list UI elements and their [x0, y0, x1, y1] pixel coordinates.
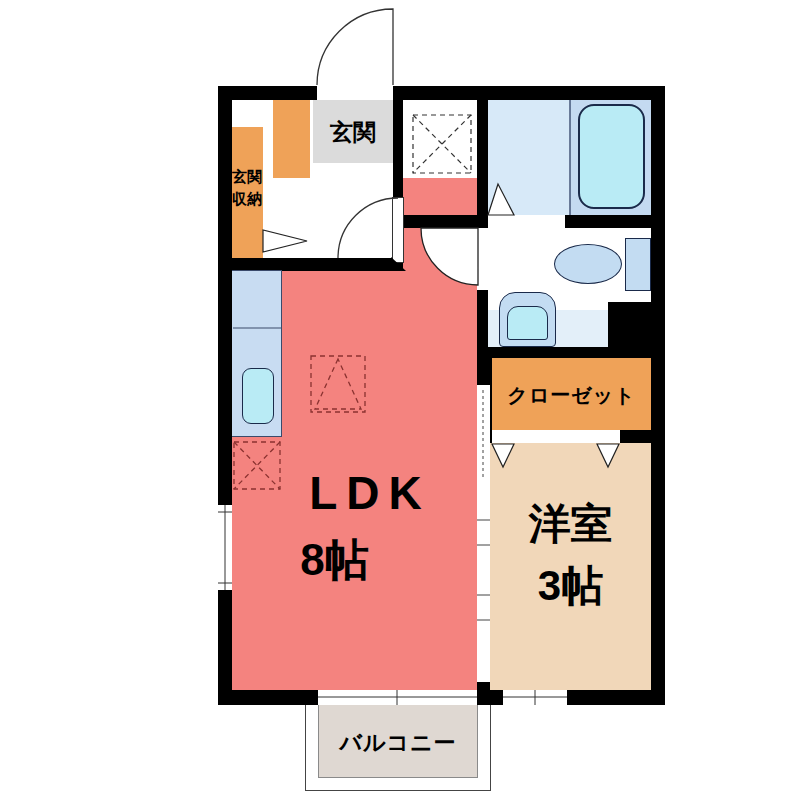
ldk-size-label: 8帖	[232, 531, 437, 590]
entrance-storage-label: 玄関 収納	[221, 166, 273, 210]
bathtub-icon	[578, 104, 645, 209]
window-left-wall	[218, 505, 232, 590]
washroom-door-opening	[477, 228, 490, 290]
washing-machine-niche-floor	[403, 100, 477, 178]
genkan-label: 玄関	[313, 117, 393, 148]
ldk-balcony-window	[318, 690, 477, 705]
wall-block	[608, 302, 651, 347]
kitchen-sink-icon	[242, 368, 274, 424]
shoe-cabinet	[273, 100, 310, 178]
western-room-window	[503, 690, 567, 705]
washbasin-icon	[554, 244, 622, 284]
hallway-door-leaf	[392, 197, 404, 263]
entrance-storage-label-line2: 収納	[221, 188, 273, 210]
western-room-size-label: 3帖	[490, 558, 651, 614]
bathroom-threshold	[488, 215, 565, 228]
toilet-bowl-icon	[507, 306, 548, 340]
entrance-door-arc-icon	[317, 9, 393, 85]
closet-folding-door-track	[492, 430, 620, 444]
balcony-label: バルコニー	[318, 728, 478, 758]
floor-plan: 玄関 玄関 収納 クローゼット LDK 8帖 洋室 3帖 バルコニー	[0, 0, 800, 800]
sliding-door-track	[477, 385, 490, 682]
washbasin-cabinet-icon	[625, 238, 651, 291]
western-room-label: 洋室	[490, 496, 651, 552]
ldk-room-label: LDK	[245, 466, 495, 520]
entrance-storage-label-line1: 玄関	[221, 166, 273, 188]
closet-label: クローゼット	[492, 382, 651, 409]
corridor-floor-lower	[403, 228, 477, 271]
corridor-floor-upper	[403, 178, 477, 215]
entrance-door-opening	[317, 86, 393, 100]
